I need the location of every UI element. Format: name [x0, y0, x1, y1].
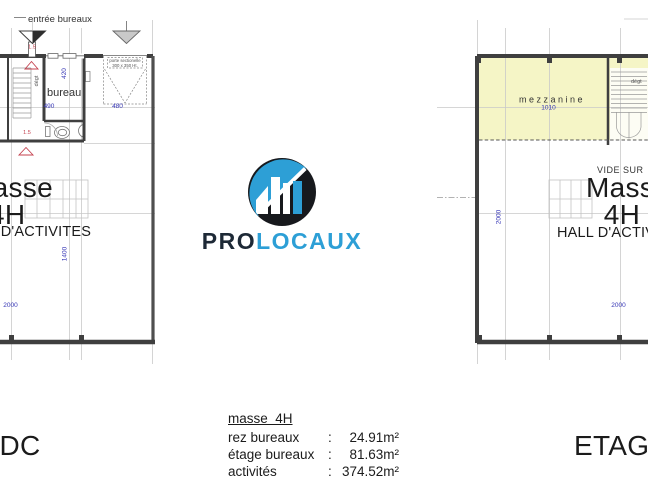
summary-row-sep: :: [328, 463, 337, 480]
dim-480: 480: [112, 103, 123, 110]
rdc-floor-label: RDC: [0, 430, 41, 462]
door-label-2: 300 x 350 Ht.: [112, 63, 138, 68]
area-summary: masse 4H rez bureaux:24.91m² étage burea…: [228, 411, 399, 480]
mezzanine-label: mezzanine: [519, 95, 585, 105]
summary-row: étage bureaux:81.63m²: [228, 446, 399, 463]
etage-hall-label: HALL D'ACTIVITES: [557, 225, 648, 241]
logo-text-locaux: LOCAUX: [256, 228, 362, 254]
dim-2000-etage-bottom: 2000: [611, 302, 626, 309]
summary-row-value: 374.52m²: [337, 463, 399, 480]
logo-mark-icon: [240, 152, 324, 228]
dim-1010: 1010: [541, 105, 556, 112]
red-mark-wc: 1.5: [23, 130, 31, 136]
summary-row-label: rez bureaux: [228, 429, 328, 446]
red-triangle-icon: [19, 148, 33, 156]
rdc-staircase: [13, 68, 31, 118]
etage-floor-label: ETAGE: [574, 430, 648, 462]
summary-row-label: étage bureaux: [228, 446, 328, 463]
summary-row-label: activités: [228, 463, 328, 480]
summary-row-value: 24.91m²: [337, 429, 399, 446]
dim-490: 490: [44, 103, 55, 110]
logo-text-pro: PRO: [202, 228, 256, 254]
summary-row-sep: :: [328, 446, 337, 463]
entrance-arrows: [20, 21, 141, 57]
rdc-hall-label: HALL D'ACTIVITES: [0, 224, 91, 240]
dim-2000-rdc: 2000: [3, 302, 18, 309]
door-arrow-icon: [113, 31, 140, 44]
dim-2000-etage-left: 2000: [496, 209, 503, 224]
logo-wordmark: PROLOCAUX: [197, 228, 367, 255]
summary-row-sep: :: [328, 429, 337, 446]
entrance-label: entrée bureaux: [28, 14, 92, 25]
etage-degt-label: dégt: [631, 79, 642, 85]
summary-row-value: 81.63m²: [337, 446, 399, 463]
plan-sheet: 1.5 1.5 entrée bureaux bureau dégt porte…: [0, 0, 648, 486]
rdc-degt-label: dégt: [34, 75, 40, 86]
summary-row: rez bureaux:24.91m²: [228, 429, 399, 446]
summary-row: activités:374.52m²: [228, 463, 399, 480]
radiator: [86, 72, 91, 82]
bureau-label: bureau: [47, 87, 81, 99]
logo: [240, 152, 324, 233]
summary-title: masse 4H: [228, 411, 399, 426]
dim-420: 420: [61, 68, 68, 79]
red-marks: 1.5 1.5: [19, 45, 38, 156]
red-mark-top: 1.5: [28, 45, 36, 51]
wc-fixtures: [45, 123, 84, 139]
dim-1400: 1400: [62, 246, 69, 261]
